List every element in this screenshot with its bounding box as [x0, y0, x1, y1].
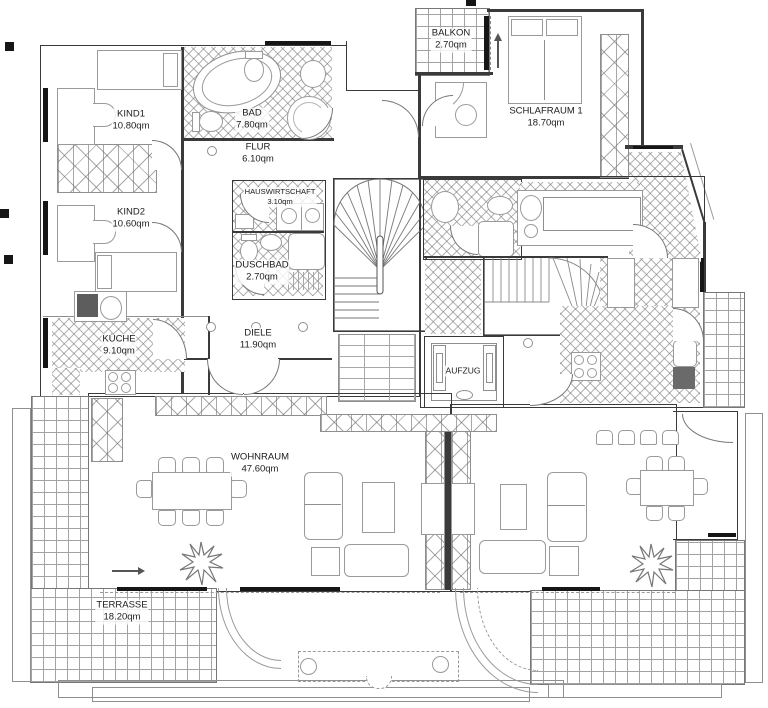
chair — [182, 510, 200, 526]
window — [240, 587, 340, 591]
arrow-line — [497, 40, 499, 68]
hall-floor — [425, 260, 481, 334]
sink — [673, 340, 697, 367]
burner-icon — [587, 368, 597, 378]
sink — [260, 234, 282, 251]
bed-pillow — [97, 255, 112, 289]
wall-diele-s2 — [278, 358, 332, 360]
light-icon — [206, 322, 216, 332]
sink — [100, 296, 122, 320]
room-label-kind2: KIND210.60qm — [112, 207, 151, 232]
knob — [524, 224, 538, 238]
chair — [596, 430, 613, 445]
burner-icon — [108, 383, 118, 393]
burner-icon — [574, 355, 584, 365]
terrace-right-upper — [675, 540, 745, 592]
chair — [158, 457, 176, 473]
window-dining — [708, 533, 736, 537]
spiral-staircase — [333, 178, 427, 332]
dishwasher — [673, 367, 695, 389]
burner-icon — [121, 383, 131, 393]
side-table — [549, 546, 579, 576]
balkon-door-frame — [484, 16, 489, 70]
window — [117, 587, 207, 591]
dining-table — [152, 472, 232, 510]
wall-notch — [346, 41, 421, 91]
sofa — [304, 472, 343, 540]
sofa — [479, 540, 546, 574]
tv-cabinet — [421, 483, 445, 535]
skylight-grid — [338, 334, 416, 402]
wall-below-balkon — [415, 72, 493, 75]
room-label-diele: DIELE11.90qm — [239, 328, 277, 353]
bed-pillow — [511, 19, 543, 36]
light-icon — [298, 322, 308, 332]
section-marker — [4, 255, 13, 264]
section-marker — [466, 0, 476, 6]
exit-arrow-line — [112, 570, 138, 572]
roof-edge-right — [745, 413, 763, 683]
balcony-strip-left — [31, 396, 89, 590]
light-icon — [207, 146, 217, 156]
sink — [520, 195, 542, 221]
column-icon — [300, 658, 317, 675]
steps-right-outline — [548, 684, 722, 698]
bed-pillow — [163, 53, 178, 87]
chair — [626, 478, 641, 495]
room-label-aufzug: AUFZUG — [445, 365, 482, 376]
terrace-right-main — [530, 590, 745, 685]
sofa — [547, 472, 587, 542]
room-label-hauswirtschaft: HAUSWIRTSCHAFT3.10qm — [244, 187, 317, 207]
steps-outline-inner — [92, 687, 530, 702]
window — [43, 201, 48, 255]
sink — [300, 60, 326, 88]
desk — [57, 88, 95, 145]
chair — [646, 456, 663, 471]
closet-kind — [57, 144, 157, 193]
side-table — [311, 547, 340, 576]
room-label-duschbad: DUSCHBAD2.70qm — [234, 260, 289, 285]
window — [43, 88, 48, 142]
arrow-head-icon — [494, 33, 502, 41]
chair — [662, 430, 679, 445]
window-top-right — [633, 146, 673, 149]
room-label-kueche: KÜCHE9.10qm — [101, 334, 136, 359]
dryer-drum-icon — [305, 208, 320, 223]
toilet — [244, 58, 264, 82]
chair — [182, 457, 200, 473]
chair — [646, 506, 663, 521]
window — [542, 587, 600, 591]
window — [43, 318, 48, 368]
tv-cabinet — [451, 483, 475, 535]
sofa-cushion-line — [547, 505, 585, 506]
room-label-flur: FLUR6.10qm — [241, 142, 275, 167]
light-icon — [523, 338, 533, 348]
wall-schlafraum-left — [418, 72, 421, 179]
column-icon — [432, 656, 449, 673]
bed-divider — [544, 40, 545, 100]
roof-edge-left — [12, 408, 31, 682]
sofa — [344, 544, 409, 577]
chair — [668, 456, 685, 471]
shower — [478, 221, 514, 257]
shower — [288, 233, 325, 270]
burner-icon — [587, 355, 597, 365]
door-schlafraum — [422, 95, 453, 126]
kueche-floor-2 — [52, 368, 80, 395]
tall-cabinet — [607, 258, 635, 308]
room-label-kind1: KIND110.80qm — [112, 109, 151, 134]
section-marker — [0, 209, 9, 218]
sideboard-strip — [155, 396, 327, 416]
balcony-strip-right — [703, 292, 745, 408]
coffee-table — [362, 482, 395, 533]
balkon-door-dashed — [490, 16, 491, 70]
chair — [231, 480, 247, 498]
toilet — [199, 111, 223, 132]
tall-cabinet — [672, 258, 699, 308]
closet-strip — [91, 398, 123, 462]
wall-diele-s1 — [184, 358, 208, 360]
window-dashed — [100, 592, 440, 593]
room-label-terrasse: TERRASSE18.20qm — [95, 600, 148, 625]
wall-schlafraum-right — [641, 9, 644, 149]
washer-drum-icon — [281, 208, 297, 224]
floor-plan: KIND110.80qm KIND210.60qm BAD7.80qm FLUR… — [0, 0, 768, 708]
shower-mat — [288, 272, 323, 290]
chair — [618, 430, 635, 445]
dining-table — [640, 470, 694, 506]
bed-pillow — [546, 19, 578, 36]
plant-icon — [628, 542, 674, 588]
wardrobe-chair — [455, 104, 477, 126]
coffee-table — [500, 484, 527, 530]
exit-arrow-icon — [138, 567, 145, 575]
plant-icon — [178, 540, 224, 586]
chair — [693, 478, 708, 495]
desk — [57, 205, 95, 262]
chair — [206, 510, 224, 526]
room-label-schlafraum1: SCHLAFRAUM 118.70qm — [508, 106, 583, 131]
chair — [668, 506, 685, 521]
room-label-wohnraum: WOHNRAUM47.60qm — [230, 452, 290, 477]
burner-icon — [108, 372, 118, 382]
dormer-arc-inner — [226, 588, 281, 661]
room-label-bad: BAD7.80qm — [235, 108, 269, 133]
stove-block — [77, 294, 98, 317]
burner-icon — [121, 372, 131, 382]
burner-icon — [574, 368, 584, 378]
sofa-cushion-line — [304, 504, 341, 505]
chair — [158, 510, 176, 526]
toilet — [487, 196, 513, 215]
sink — [431, 191, 459, 223]
sideboard-strip — [320, 414, 497, 432]
chair — [640, 430, 657, 445]
schlafraum-wardrobe-strip — [600, 34, 629, 178]
chair — [136, 480, 152, 498]
chair — [206, 457, 224, 473]
kitchen-worktop — [543, 197, 641, 231]
section-marker — [5, 42, 14, 51]
wall-schlafraum-top — [487, 9, 644, 12]
room-label-balkon: BALKON2.70qm — [431, 28, 472, 53]
window-dashed — [460, 592, 675, 593]
window — [265, 41, 331, 45]
